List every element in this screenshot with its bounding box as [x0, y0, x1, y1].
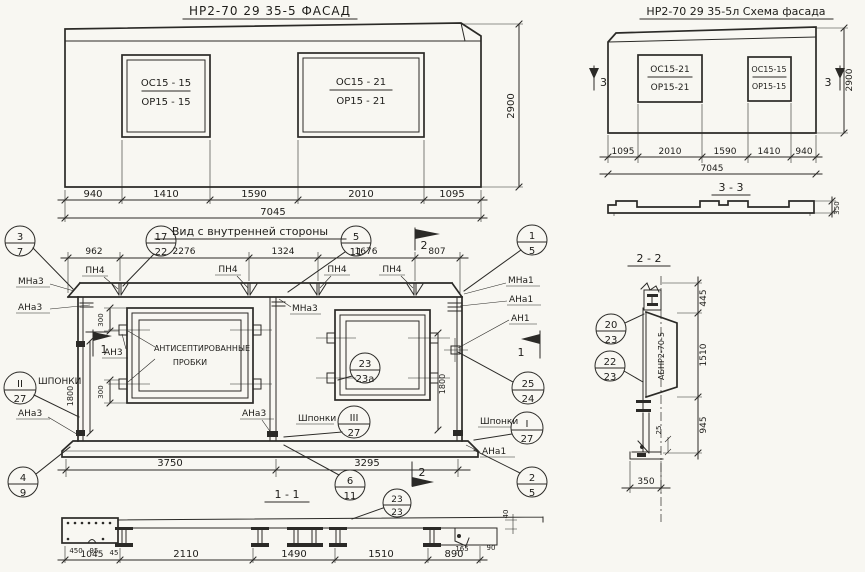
label-pn4: ПН4: [218, 265, 238, 275]
facade-schema-view: НР2-70 29 35-5л Схема фасада ОС15-21 ОР1…: [589, 5, 855, 177]
dim-small: 40: [502, 510, 510, 519]
marker-label: 2: [421, 239, 428, 252]
dim-height: 2900: [845, 68, 855, 91]
section-1-1: 1 - 1 1045 2110 1490 1510 890 450 95 45: [58, 488, 543, 563]
callout-22-23: 22 23: [595, 351, 643, 383]
ribs: [115, 527, 441, 547]
dim: 3295: [354, 458, 379, 469]
section-marker-3-right: 3: [825, 66, 846, 90]
dim: 2276: [173, 247, 196, 257]
label-ana3: АНа3: [242, 409, 266, 419]
facade-title: НР2-70 29 35-5 ФАСАД: [189, 4, 351, 18]
section-profile: [608, 201, 814, 213]
callout-20-23: 20 23: [596, 314, 644, 346]
dim-350: 350: [637, 477, 654, 487]
callout-top: I: [526, 419, 529, 430]
label-shponki: ШПОНКИ: [38, 377, 81, 387]
label-pn4: ПН4: [85, 266, 105, 276]
dim: 2110: [173, 549, 198, 560]
dim-small: 45: [110, 549, 119, 557]
callout-top: 23: [359, 359, 372, 370]
dim: 940: [795, 147, 812, 157]
dim: 940: [83, 189, 102, 200]
section-marker-2-bottom: 2: [412, 462, 434, 487]
dim-945: 945: [699, 416, 709, 433]
callout-bottom: 9: [20, 488, 26, 499]
slab: [118, 517, 543, 545]
callout-top: III: [350, 413, 359, 424]
facade-window-right: ОС15 - 21 ОР15 - 21: [298, 53, 424, 137]
dim-1510: 1510: [699, 343, 709, 366]
dim: 962: [85, 247, 102, 257]
inner-view: Вид с внутренней стороны АНТИСЕПТИ: [4, 225, 547, 502]
dim: 2010: [348, 189, 373, 200]
label-mna3: МНа3: [292, 304, 318, 314]
callout-4-9: 4 9: [8, 447, 70, 499]
callout-bottom: 23: [391, 508, 402, 518]
marker-label: 3: [600, 76, 607, 89]
section-title: 3 - 3: [719, 181, 744, 194]
callout-bottom: 11: [350, 247, 363, 258]
label-an1: АН1: [511, 314, 530, 324]
inner-title: Вид с внутренней стороны: [172, 225, 328, 238]
window-mark-bottom: ОР15 - 21: [336, 96, 385, 107]
callout-III-27-keys: III 27 Шпонки: [284, 406, 370, 439]
key-middle: [267, 431, 278, 437]
callout-top: 1: [529, 231, 535, 242]
section-marker-3-left: 3: [589, 66, 607, 90]
section-title: 2 - 2: [637, 252, 662, 265]
dim: 1510: [368, 549, 393, 560]
dim-1800: 1800: [438, 374, 447, 394]
callout-bottom: 5: [529, 246, 535, 257]
callout-bottom: 27: [521, 434, 534, 445]
label-ana1: АНа1: [509, 295, 533, 305]
dim-small: 95: [90, 547, 99, 555]
dim-445: 445: [699, 289, 709, 306]
marker-label: 3: [825, 76, 832, 89]
dim: 1410: [758, 147, 781, 157]
window-mark-top: ОС15-15: [751, 65, 786, 74]
key-right: [453, 430, 463, 436]
marker-label: 1: [518, 346, 525, 359]
window-mark-top: ОС15-21: [650, 65, 690, 75]
label-pn4: ПН4: [327, 265, 347, 275]
stamp-mark: АБНР2-70-5: [657, 332, 666, 380]
callout-17-22: 17 22: [123, 226, 176, 286]
callout-top: 17: [155, 232, 168, 243]
dim-300: 300: [97, 313, 105, 326]
panel-sill: [62, 441, 478, 457]
callout-bottom: 11: [344, 491, 357, 502]
label-ana3: АНа3: [18, 303, 42, 313]
label-mna1: МНа1: [508, 276, 534, 286]
callout-I-27-keys: I 27 Шпонки: [474, 412, 543, 445]
inner-window-right: [316, 310, 450, 400]
facade-view: НР2-70 29 35-5 ФАСАД ОС15 - 15 ОР15 - 15…: [58, 4, 523, 222]
dim: 2010: [659, 147, 682, 157]
callout-top: 22: [604, 357, 617, 368]
window-mark-bottom: ОР15 - 15: [141, 97, 190, 108]
dim-height: 2900: [506, 93, 517, 118]
dim: 1095: [612, 147, 635, 157]
callout-bottom: 23: [604, 372, 617, 383]
callout-bottom: 7: [17, 247, 23, 258]
end-block: [62, 518, 118, 543]
callout-top: 23: [391, 495, 402, 505]
dim: 1490: [281, 549, 306, 560]
dim: 1324: [272, 247, 295, 257]
note-line2: ПРОБКИ: [173, 358, 207, 367]
callout-top: 20: [605, 320, 618, 331]
facade-window-left: ОС15 - 15 ОР15 - 15: [122, 55, 210, 137]
dim-300: 300: [97, 385, 105, 398]
window-mark-top: ОС15 - 15: [141, 78, 191, 89]
section-marker-1-right: 1: [518, 331, 541, 359]
callout-bottom: 23а: [356, 374, 375, 385]
schema-panel-outline: [608, 27, 816, 133]
dim-1800: 1800: [66, 386, 75, 406]
marker-label: 1: [101, 343, 108, 356]
note-line1: АНТИСЕПТИРОВАННЫЕ: [154, 344, 250, 353]
dim: 1590: [714, 147, 737, 157]
callout-bottom: 27: [348, 428, 361, 439]
key-left-top: [76, 341, 85, 347]
dim: 1410: [153, 189, 178, 200]
callout-23-23: 23 23: [352, 489, 411, 519]
callout-top: 5: [353, 232, 359, 243]
label-shponki: Шпонки: [480, 417, 518, 427]
callout-top: 2: [529, 473, 535, 484]
callout-top: 6: [347, 476, 353, 487]
dim-total: 7045: [701, 164, 724, 174]
callout-top: II: [17, 379, 23, 390]
callout-bottom: 27: [14, 394, 27, 405]
inner-window-left: АНТИСЕПТИРОВАННЫЕ ПРОБКИ: [108, 308, 272, 403]
dim: 807: [428, 247, 445, 257]
section-2-2: 2 - 2 АБНР2-70-5 25 445 1510 945 350 20 …: [595, 252, 709, 522]
dim-total: 7045: [260, 207, 285, 218]
dim-depth: 350: [833, 201, 841, 214]
window-mark-top: ОС15 - 21: [336, 77, 386, 88]
callout-bottom: 24: [522, 394, 535, 405]
callout-top: 25: [522, 379, 535, 390]
window-mark-bottom: ОР15-15: [752, 82, 786, 91]
callout-bottom: 5: [529, 488, 535, 499]
callout-top: 4: [20, 473, 26, 484]
dim-small: 450: [69, 547, 82, 555]
callout-25-24: 25 24: [458, 352, 544, 405]
window-mark-bottom: ОР15-21: [651, 83, 690, 93]
callout-1-5: 1 5: [464, 225, 547, 291]
label-ana3: АНа3: [18, 409, 42, 419]
dim-small: 165: [455, 545, 468, 553]
key-left-bottom: [76, 430, 85, 436]
label-pn4: ПН4: [382, 265, 402, 275]
dim: 3750: [157, 458, 182, 469]
dim: 1095: [439, 189, 464, 200]
label-shponki: Шпонки: [298, 414, 336, 424]
schema-window-left: ОС15-21 ОР15-21: [638, 55, 702, 102]
marker-label: 2: [419, 466, 426, 479]
callout-top: 3: [17, 232, 23, 243]
dim-25: 25: [655, 426, 663, 435]
callout-bottom: 22: [155, 247, 168, 258]
section-title: 1 - 1: [275, 488, 300, 501]
schema-title: НР2-70 29 35-5л Схема фасада: [646, 5, 825, 18]
callout-23-23a: 23 23а: [338, 353, 380, 385]
callout-2-5: 2 5: [474, 450, 547, 499]
drawing-sheet: НР2-70 29 35-5 ФАСАД ОС15 - 15 ОР15 - 15…: [0, 0, 865, 572]
schema-window-right: ОС15-15 ОР15-15: [748, 57, 791, 101]
section-3-3: 3 - 3 350: [608, 181, 841, 217]
callout-bottom: 23: [605, 335, 618, 346]
dim-small: 90: [487, 544, 496, 552]
dim: 1590: [241, 189, 266, 200]
label-mna3: МНа3: [18, 277, 44, 287]
blueprint-svg: НР2-70 29 35-5 ФАСАД ОС15 - 15 ОР15 - 15…: [0, 0, 865, 572]
